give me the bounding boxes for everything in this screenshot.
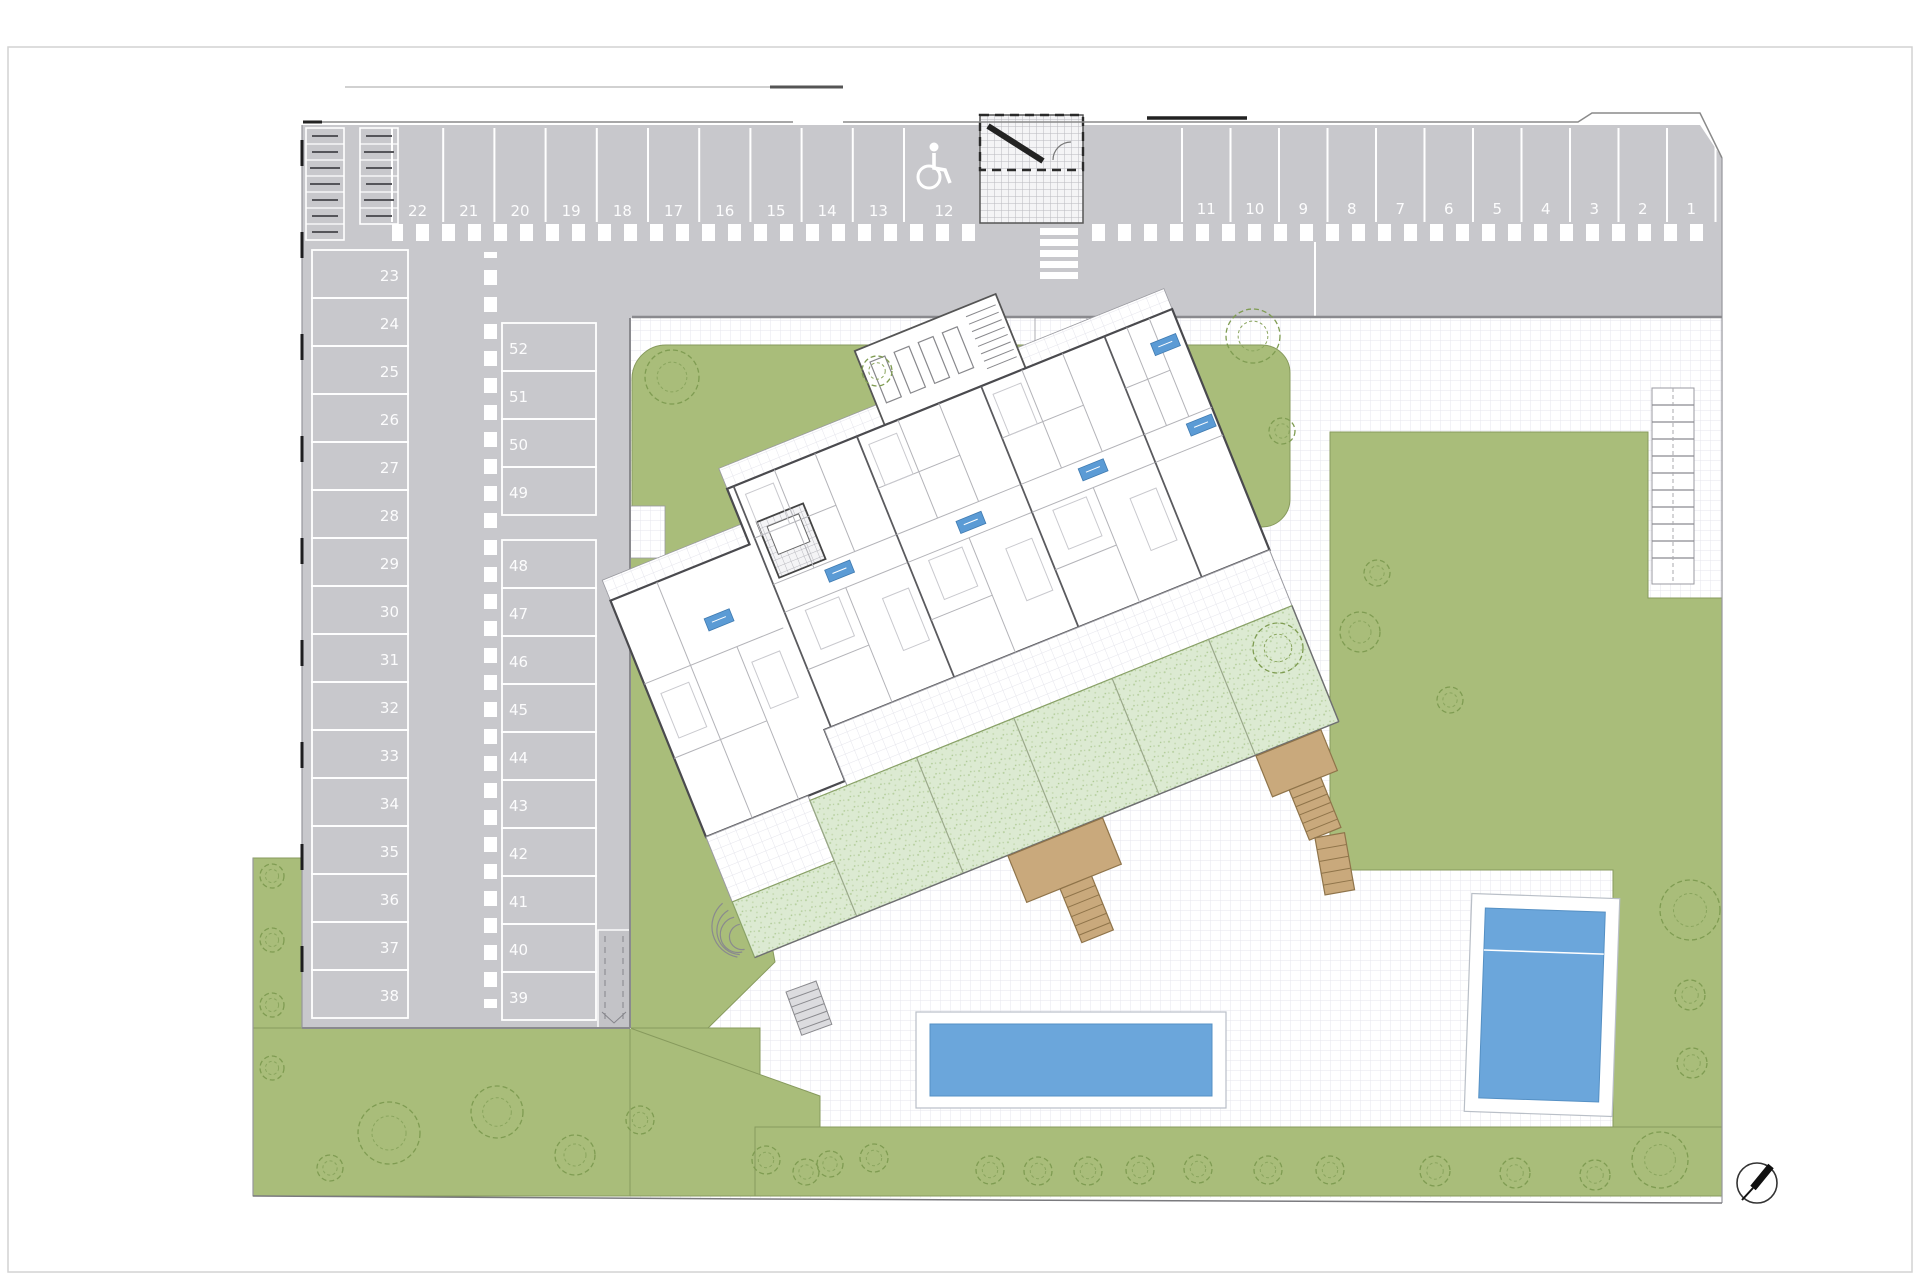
north-arrow-icon	[1737, 1163, 1777, 1203]
main-pool	[916, 1012, 1226, 1108]
vehicle-ramp	[598, 930, 630, 1028]
stall-number: 41	[509, 893, 528, 911]
stall-number: 9	[1298, 200, 1308, 218]
stall-number: 36	[380, 891, 399, 909]
stall-number: 34	[380, 795, 399, 813]
stall-number: 48	[509, 557, 528, 575]
stall-number: 37	[380, 939, 399, 957]
stall-number: 24	[380, 315, 399, 333]
stall-number: 42	[509, 845, 528, 863]
stall-front-markers-right	[1085, 224, 1716, 241]
stall-number: 45	[509, 701, 528, 719]
moto-rack	[1652, 388, 1694, 584]
stall-number: 4	[1541, 200, 1551, 218]
stall-number: 8	[1347, 200, 1357, 218]
pool-water	[1479, 908, 1606, 1102]
lawn-bottom-band	[755, 1127, 1722, 1196]
stall-number: 43	[509, 797, 528, 815]
stall-number: 18	[613, 202, 632, 220]
road-centerline	[484, 252, 497, 1008]
stall-number: 29	[380, 555, 399, 573]
stall-front-markers-left	[392, 224, 985, 241]
stall-number: 31	[380, 651, 399, 669]
refuse-structure	[980, 115, 1083, 223]
stall-number: 15	[766, 202, 785, 220]
stall-number: 14	[818, 202, 837, 220]
stall-number: 51	[509, 388, 528, 406]
second-pool	[1464, 893, 1620, 1116]
stall-number: 39	[509, 989, 528, 1007]
stall-number: 7	[1395, 200, 1405, 218]
stall-number: 47	[509, 605, 528, 623]
stall-number: 2	[1638, 200, 1648, 218]
stall-number: 12	[934, 202, 953, 220]
stall-number: 49	[509, 484, 528, 502]
stall-number: 33	[380, 747, 399, 765]
stall-number: 32	[380, 699, 399, 717]
stall-number: 30	[380, 603, 399, 621]
site-plan-canvas: 22212019181716151413121110987654321 2324…	[0, 0, 1920, 1280]
stall-number: 44	[509, 749, 528, 767]
stall-number: 13	[869, 202, 888, 220]
stall-number: 50	[509, 436, 528, 454]
stall-number: 3	[1589, 200, 1599, 218]
stall-number: 20	[510, 202, 529, 220]
stall-number: 17	[664, 202, 683, 220]
stall-number: 40	[509, 941, 528, 959]
stall-number: 22	[408, 202, 427, 220]
stall-number: 26	[380, 411, 399, 429]
stall-number: 38	[380, 987, 399, 1005]
stall-number: 46	[509, 653, 528, 671]
stall-number: 27	[380, 459, 399, 477]
stall-number: 11	[1197, 200, 1216, 218]
stall-number: 25	[380, 363, 399, 381]
stall-number: 5	[1492, 200, 1502, 218]
stall-number: 28	[380, 507, 399, 525]
stall-number: 6	[1444, 200, 1454, 218]
stall-number: 52	[509, 340, 528, 358]
stall-number: 10	[1245, 200, 1264, 218]
pool-water	[930, 1024, 1212, 1096]
stall-number: 21	[459, 202, 478, 220]
stall-number: 23	[380, 267, 399, 285]
stall-number: 16	[715, 202, 734, 220]
stall-number: 1	[1686, 200, 1696, 218]
stall-number: 35	[380, 843, 399, 861]
stall-number: 19	[562, 202, 581, 220]
